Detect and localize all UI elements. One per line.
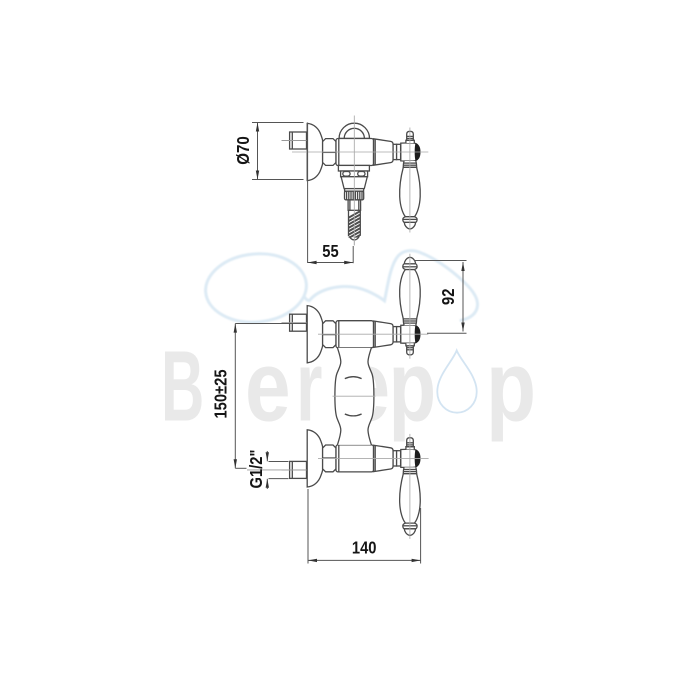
svg-text:140: 140 [352, 538, 377, 558]
svg-text:55: 55 [322, 242, 338, 262]
svg-text:Ø70: Ø70 [233, 136, 254, 165]
svg-text:150±25: 150±25 [211, 369, 231, 418]
svg-text:G1/2": G1/2" [247, 450, 267, 489]
svg-text:92: 92 [439, 289, 459, 305]
svg-text:B: B [161, 331, 204, 443]
svg-text:e: e [245, 331, 291, 443]
svg-text:p: p [486, 331, 536, 443]
